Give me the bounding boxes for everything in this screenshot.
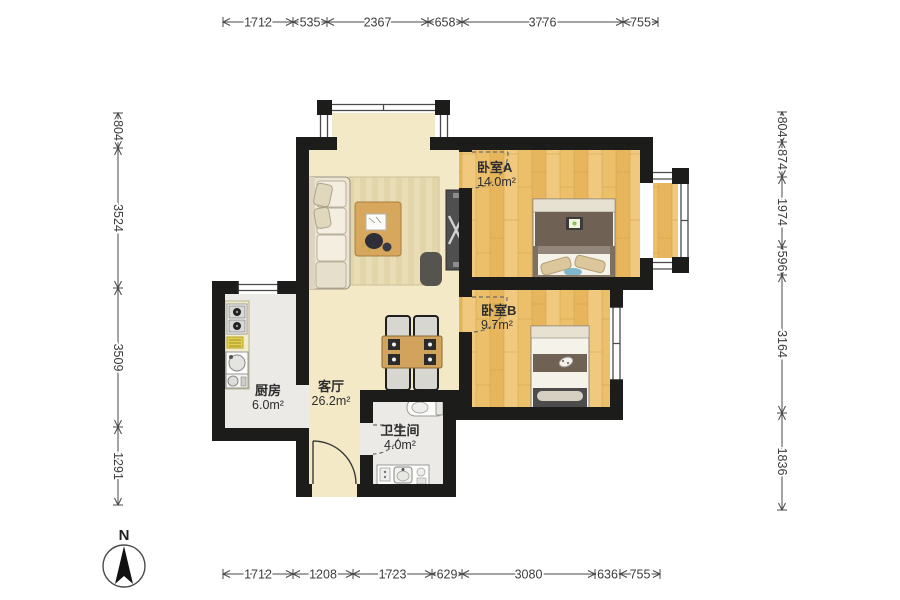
dimension-label: 1712	[244, 568, 272, 582]
dimension-label: 804	[111, 120, 125, 141]
dimension-label: 3164	[775, 330, 789, 358]
dimension-label: 629	[437, 568, 458, 582]
room-name: 卫生间	[372, 423, 428, 438]
dimension-chain-top: 171253523676583776755	[223, 16, 658, 30]
room-area: 9.7m²	[481, 318, 516, 333]
dimension-label: 1712	[244, 16, 272, 30]
kitchen-counter	[225, 301, 249, 389]
room-area: 26.2m²	[302, 394, 360, 409]
room-area: 6.0m²	[238, 398, 298, 413]
dimension-label: 596	[775, 251, 789, 272]
room-area: 4.0m²	[372, 438, 428, 453]
bathroom-vanity	[377, 465, 429, 485]
dimension-chain-right: 804874197459631641836	[775, 112, 789, 510]
dimension-label: 1974	[775, 198, 789, 226]
armchair	[420, 252, 442, 286]
room-name: 客厅	[302, 379, 360, 394]
floor-plan: 171253523676583776755 171212081723629308…	[0, 0, 900, 600]
room-name: 卧室A	[477, 160, 516, 175]
room-label-bedroom-b: 卧室B 9.7m²	[481, 303, 516, 333]
bed-b	[531, 326, 589, 408]
dimension-label: 755	[630, 568, 651, 582]
north-compass-icon	[103, 545, 145, 587]
dimension-label: 1723	[379, 568, 407, 582]
dimension-chain-left: 804352435091291	[111, 113, 125, 505]
bed-a	[533, 199, 615, 279]
floor-plan-canvas: 171253523676583776755 171212081723629308…	[0, 0, 900, 600]
dimension-chain-bottom: 1712120817236293080636755	[223, 568, 660, 582]
dimension-label: 874	[775, 149, 789, 170]
dimension-label: 3524	[111, 204, 125, 232]
dimension-label: 804	[775, 117, 789, 138]
dimension-label: 755	[630, 16, 651, 30]
dimension-label: 3509	[111, 344, 125, 372]
dimension-label: 1208	[309, 568, 337, 582]
room-name: 卧室B	[481, 303, 516, 318]
dimension-label: 1836	[775, 448, 789, 476]
room-area: 14.0m²	[477, 175, 516, 190]
room-label-bathroom: 卫生间 4.0m²	[372, 423, 428, 453]
coffee-table	[355, 202, 401, 256]
dimension-label: 2367	[364, 16, 392, 30]
sofa	[306, 177, 350, 289]
bedroom-b-window	[610, 307, 623, 380]
room-label-kitchen: 厨房 6.0m²	[238, 383, 298, 413]
dimension-label: 3776	[529, 16, 557, 30]
dimension-label: 535	[300, 16, 321, 30]
kitchen-window	[238, 281, 278, 294]
north-label: N	[110, 527, 138, 544]
dimension-label: 3080	[515, 568, 543, 582]
dimension-label: 1291	[111, 452, 125, 480]
dimension-label: 636	[597, 568, 618, 582]
dimension-label: 658	[435, 16, 456, 30]
room-name: 厨房	[238, 383, 298, 398]
room-label-bedroom-a: 卧室A 14.0m²	[477, 160, 516, 190]
room-label-living: 客厅 26.2m²	[302, 379, 360, 409]
